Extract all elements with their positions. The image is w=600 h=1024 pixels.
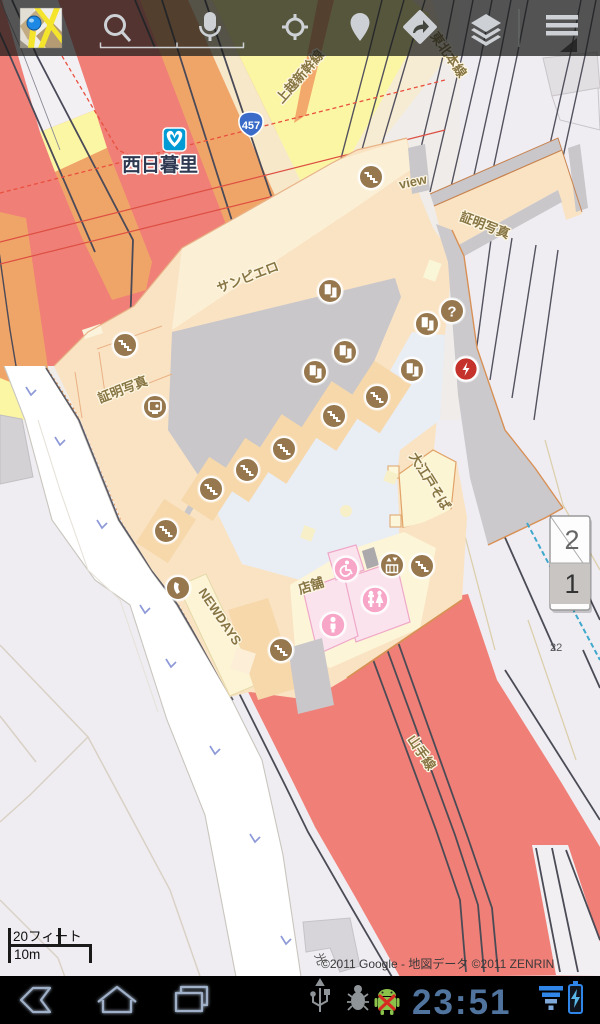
svg-text:山手線: 山手線 <box>405 732 440 774</box>
svg-text:20フィート: 20フィート <box>13 929 82 944</box>
svg-text:2: 2 <box>564 525 579 555</box>
svg-text:23:51: 23:51 <box>412 983 512 1022</box>
svg-text:457: 457 <box>242 120 260 132</box>
svg-text:大江戸そば: 大江戸そば <box>406 450 453 513</box>
svg-text:証明写真: 証明写真 <box>458 209 512 242</box>
svg-text:西日暮里: 西日暮里 <box>122 154 198 176</box>
svg-text:1: 1 <box>564 569 579 599</box>
svg-text:サンピエロ: サンピエロ <box>215 258 281 295</box>
svg-text:view: view <box>398 171 430 192</box>
svg-text:店舗: 店舗 <box>296 575 325 597</box>
svg-text:©2011 Google - 地図データ ©2011 ZEN: ©2011 Google - 地図データ ©2011 ZENRIN <box>321 956 554 971</box>
svg-text:NEWDAYS: NEWDAYS <box>196 585 245 648</box>
svg-text:22: 22 <box>550 642 562 654</box>
svg-text:証明写真: 証明写真 <box>96 373 150 406</box>
svg-text:10m: 10m <box>14 947 40 962</box>
